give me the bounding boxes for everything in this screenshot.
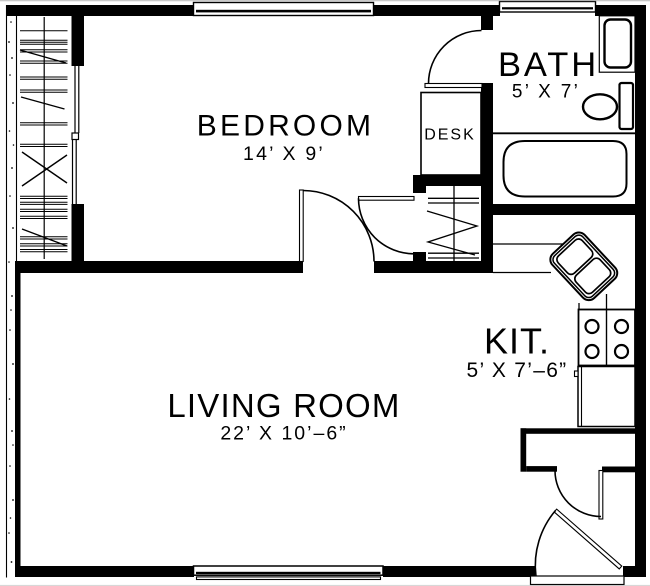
svg-text:5’ X 7’: 5’ X 7’	[512, 81, 580, 102]
svg-text:KIT.: KIT.	[484, 321, 550, 362]
svg-text:BATH: BATH	[498, 46, 599, 84]
svg-text:5’ X 7’–6”: 5’ X 7’–6”	[467, 359, 568, 382]
svg-text:14’ X 9’: 14’ X 9’	[243, 143, 325, 165]
svg-text:BEDROOM: BEDROOM	[197, 109, 374, 142]
svg-text:LIVING ROOM: LIVING ROOM	[167, 387, 400, 424]
svg-text:22’ X 10’–6”: 22’ X 10’–6”	[220, 423, 347, 445]
svg-text:DESK: DESK	[424, 127, 476, 144]
